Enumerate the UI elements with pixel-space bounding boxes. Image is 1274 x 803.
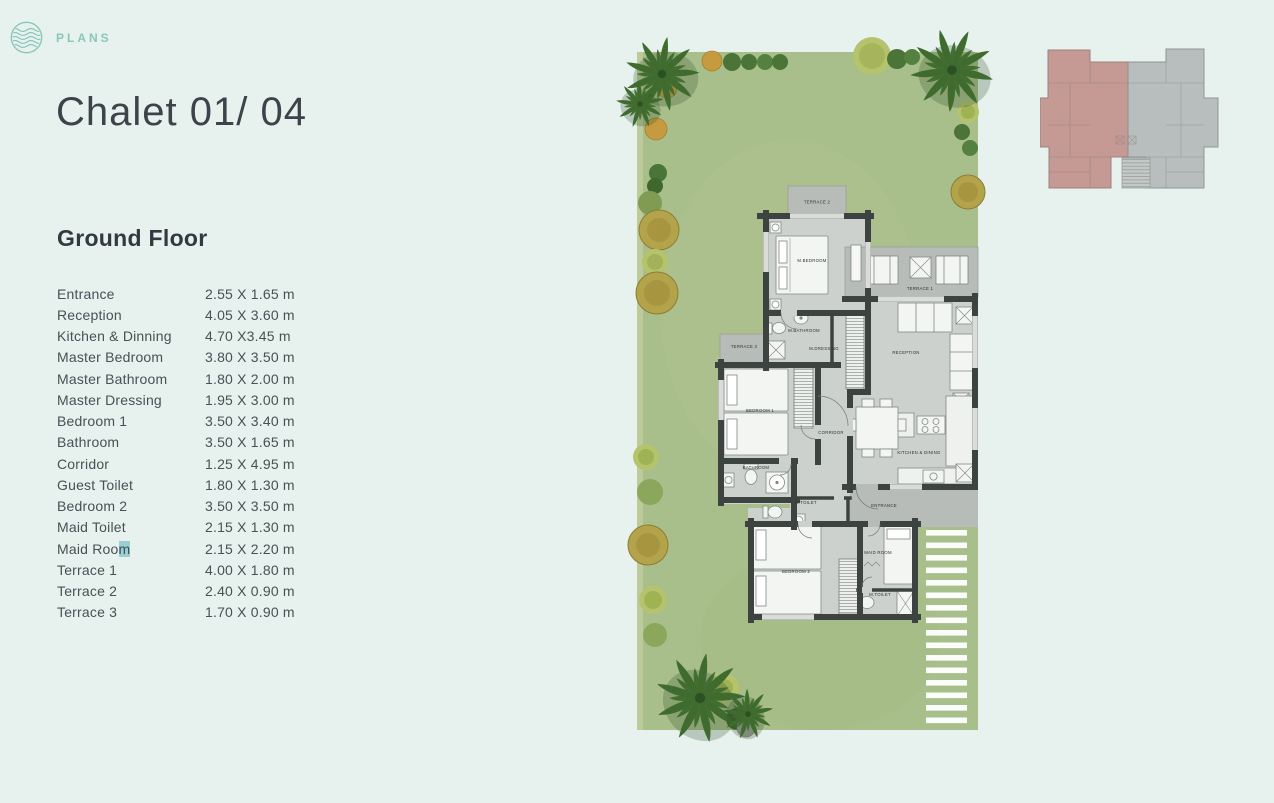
table-row: Guest Toilet1.80 X 1.30 m	[57, 474, 317, 495]
room-size: 2.40 X 0.90 m	[205, 583, 295, 599]
plans-page: PLANS Chalet 01/ 04 Ground Floor Entranc…	[0, 0, 1274, 803]
room-label: Terrace 2	[57, 583, 205, 599]
table-row: Master Bedroom3.80 X 3.50 m	[57, 347, 317, 368]
room-size: 2.15 X 1.30 m	[205, 519, 295, 535]
room-label: Entrance	[57, 286, 205, 302]
room-size: 1.70 X 0.90 m	[205, 604, 295, 620]
room-size: 2.55 X 1.65 m	[205, 286, 295, 302]
table-row: Entrance2.55 X 1.65 m	[57, 283, 317, 304]
plan-label-bathroom: BATHROOM	[743, 465, 770, 470]
page-title: Chalet 01/ 04	[56, 90, 307, 135]
room-label: Guest Toilet	[57, 477, 205, 493]
room-label: Master Dressing	[57, 392, 205, 408]
plan-label-maid-room: MAID ROOM	[864, 550, 892, 555]
walkway-stripes	[926, 530, 967, 726]
room-label: Terrace 3	[57, 604, 205, 620]
table-row: Bedroom 13.50 X 3.40 m	[57, 411, 317, 432]
table-row: Terrace 31.70 X 0.90 m	[57, 602, 317, 623]
room-size: 4.00 X 1.80 m	[205, 562, 295, 578]
plan-label-bedroom2: BEDROOM 2	[782, 569, 810, 574]
unit-locator-miniplan	[1040, 40, 1220, 195]
room-size: 2.15 X 2.20 m	[205, 541, 295, 557]
brand-wordmark: PLANS	[56, 31, 112, 45]
site-plan: TERRACE 2 M.BEDROOM M.BATHROOM M.DRESSIN…	[600, 30, 1015, 765]
room-label: Reception	[57, 307, 205, 323]
overview-stairs	[1122, 158, 1150, 188]
table-row: Terrace 22.40 X 0.90 m	[57, 581, 317, 602]
room-label: Maid Room	[57, 541, 205, 557]
room-label: Bathroom	[57, 434, 205, 450]
table-row: Corridor1.25 X 4.95 m	[57, 453, 317, 474]
plan-label-corridor: CORRIDOR	[818, 430, 843, 435]
plan-label-m-dressing: M.DRESSING	[809, 346, 839, 351]
room-size: 4.70 X3.45 m	[205, 328, 291, 344]
table-row: Master Dressing1.95 X 3.00 m	[57, 389, 317, 410]
plan-label-bedroom1: BEDROOM 1	[746, 408, 774, 413]
room-label: Master Bathroom	[57, 371, 205, 387]
room-size: 3.80 X 3.50 m	[205, 349, 295, 365]
plan-label-m-toilet: M.TOILET	[869, 592, 891, 597]
table-row: Reception4.05 X 3.60 m	[57, 304, 317, 325]
room-label: Corridor	[57, 456, 205, 472]
room-label: Bedroom 2	[57, 498, 205, 514]
plan-label-g-toilet: G.TOILET	[795, 500, 817, 505]
table-row: Kitchen & Dinning4.70 X3.45 m	[57, 326, 317, 347]
room-size: 1.95 X 3.00 m	[205, 392, 295, 408]
plan-label-kitchen-dining: KITCHEN & DINING	[897, 450, 941, 455]
table-row: Terrace 14.00 X 1.80 m	[57, 559, 317, 580]
room-size: 4.05 X 3.60 m	[205, 307, 295, 323]
floor-heading: Ground Floor	[57, 225, 208, 252]
plan-label-terrace3: TERRACE 3	[731, 344, 758, 349]
table-row: Maid Toilet2.15 X 1.30 m	[57, 517, 317, 538]
plan-label-terrace2: TERRACE 2	[804, 200, 831, 205]
plan-label-m-bedroom: M.BEDROOM	[797, 258, 826, 263]
room-label: Master Bedroom	[57, 349, 205, 365]
room-size: 1.80 X 2.00 m	[205, 371, 295, 387]
plan-label-terrace1: TERRACE 1	[907, 286, 934, 291]
waves-logo-icon	[10, 21, 43, 54]
plan-label-m-bathroom: M.BATHROOM	[788, 328, 820, 333]
room-size: 3.50 X 3.40 m	[205, 413, 295, 429]
room-size: 1.25 X 4.95 m	[205, 456, 295, 472]
table-row: Maid Room 2.15 X 2.20 m	[57, 538, 317, 559]
selected-text: m	[119, 541, 131, 557]
table-row: Bathroom3.50 X 1.65 m	[57, 432, 317, 453]
room-label: Kitchen & Dinning	[57, 328, 205, 344]
room-label: Terrace 1	[57, 562, 205, 578]
room-label: Bedroom 1	[57, 413, 205, 429]
plan-label-reception: RECEPTION	[892, 350, 919, 355]
plan-label-entrance: ENTRANCE	[871, 503, 897, 508]
table-row: Master Bathroom1.80 X 2.00 m	[57, 368, 317, 389]
overview-unit-selected[interactable]	[1040, 50, 1128, 188]
brand[interactable]: PLANS	[10, 21, 112, 54]
table-row: Bedroom 23.50 X 3.50 m	[57, 496, 317, 517]
terrace3-deck	[720, 334, 768, 364]
room-dimensions-table: Entrance2.55 X 1.65 m Reception4.05 X 3.…	[57, 283, 317, 623]
room-size: 3.50 X 1.65 m	[205, 434, 295, 450]
room-size: 1.80 X 1.30 m	[205, 477, 295, 493]
room-size: 3.50 X 3.50 m	[205, 498, 295, 514]
room-label: Maid Toilet	[57, 519, 205, 535]
